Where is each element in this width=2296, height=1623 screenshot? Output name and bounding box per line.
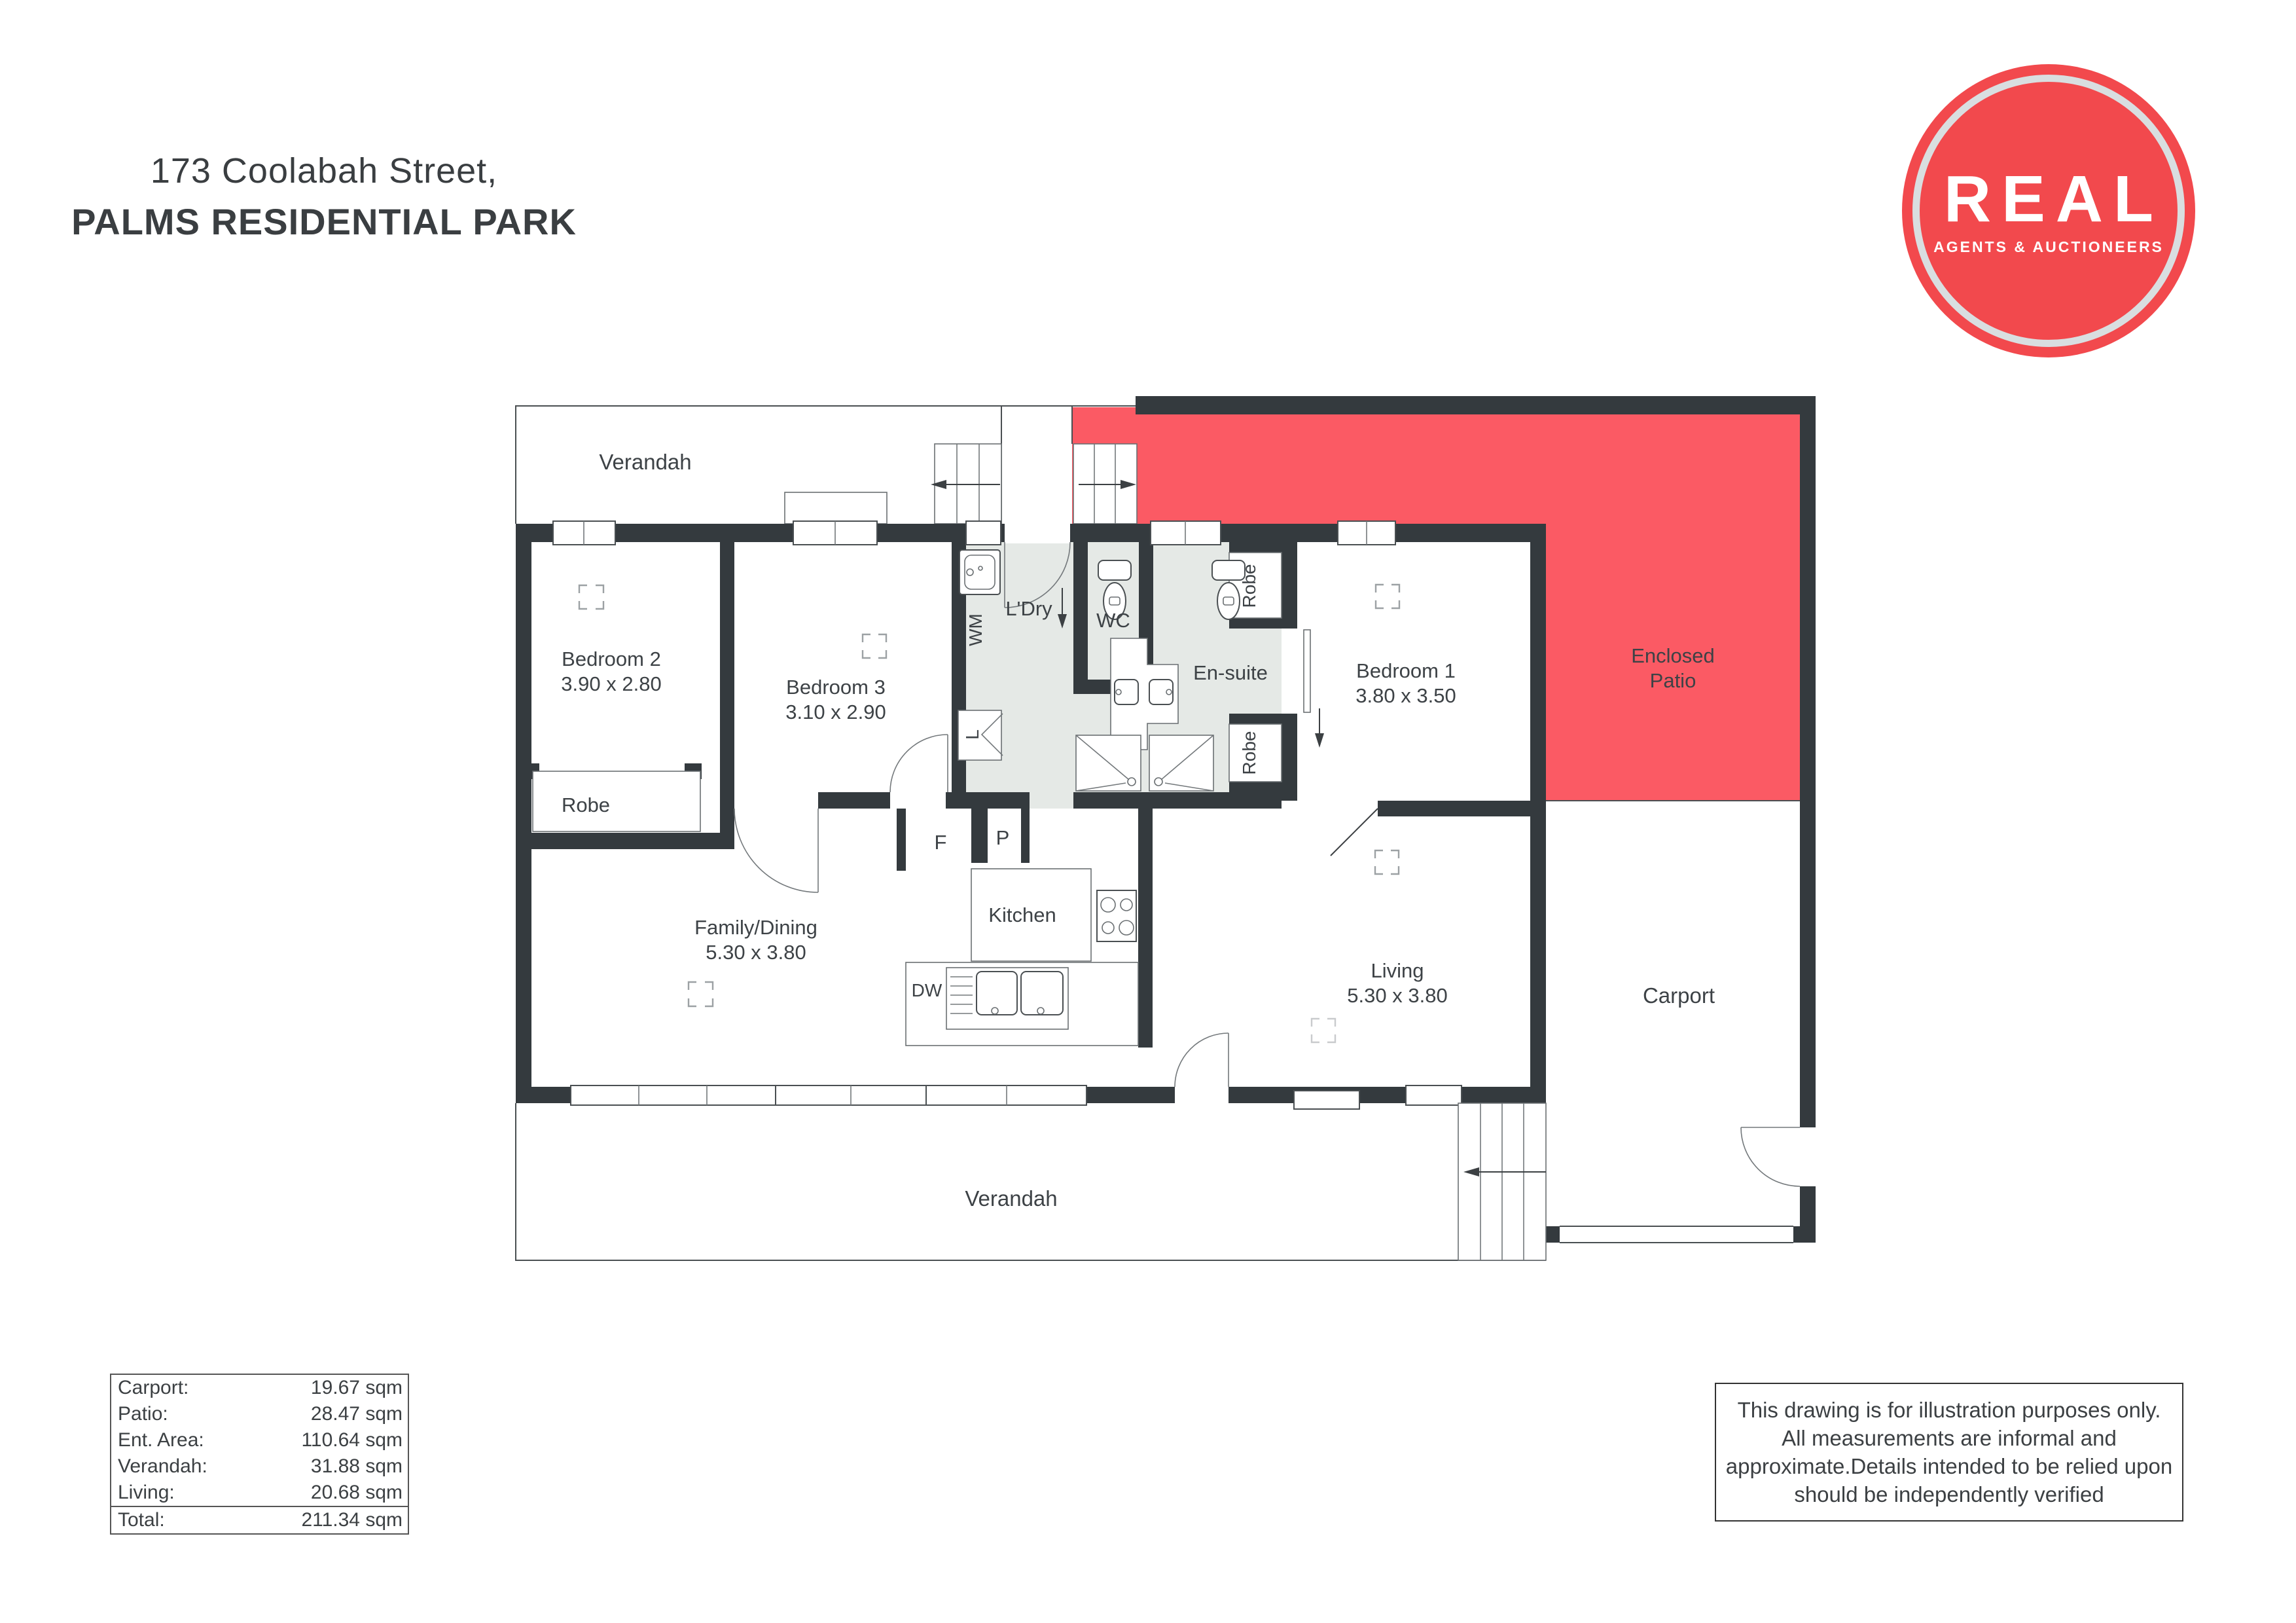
disclaimer-line: All measurements are informal and — [1719, 1424, 2179, 1452]
disclaimer-line: This drawing is for illustration purpose… — [1719, 1396, 2179, 1424]
disclaimer-line: should be independently verified — [1719, 1480, 2179, 1508]
label-linen: L — [962, 729, 982, 740]
label-wc: WC — [1096, 609, 1130, 632]
label-fridge: F — [935, 831, 947, 854]
stairs-front-left — [931, 444, 1001, 524]
laundry-trough — [960, 550, 1000, 594]
room-dims-living: 5.30 x 3.80 — [1347, 984, 1447, 1007]
table-row: Carport: 19.67 sqm — [111, 1375, 408, 1401]
total-value: 211.34 sqm — [301, 1509, 403, 1531]
room-label-verandah-top: Verandah — [599, 450, 691, 474]
label-pantry: P — [996, 826, 1010, 849]
room-label-family: Family/Dining — [694, 916, 817, 939]
table-total-row: Total: 211.34 sqm — [111, 1507, 408, 1533]
stairs-front-right — [1073, 444, 1137, 524]
table-row: Verandah: 31.88 sqm — [111, 1453, 408, 1480]
room-label-patio-line2: Patio — [1650, 669, 1696, 692]
room-label-verandah-bottom: Verandah — [965, 1186, 1057, 1211]
area-row-label: Carport: — [118, 1377, 188, 1399]
kitchen-fixtures — [906, 869, 1138, 1046]
label-robe-bed2: Robe — [562, 793, 610, 816]
table-row: Ent. Area: 110.64 sqm — [111, 1427, 408, 1453]
area-row-value: 31.88 sqm — [311, 1455, 403, 1478]
total-label: Total: — [118, 1509, 165, 1531]
area-row-value: 20.68 sqm — [311, 1482, 403, 1504]
room-dims-bedroom3: 3.10 x 2.90 — [785, 701, 886, 723]
area-row-label: Living: — [118, 1482, 175, 1504]
room-label-bedroom1: Bedroom 1 — [1356, 659, 1456, 682]
table-row: Patio: 28.47 sqm — [111, 1401, 408, 1427]
front-door-opening — [1005, 522, 1070, 543]
room-label-kitchen: Kitchen — [988, 903, 1056, 926]
room-dims-bedroom2: 3.90 x 2.80 — [561, 672, 661, 695]
disclaimer-box: This drawing is for illustration purpose… — [1715, 1383, 2183, 1522]
area-row-value: 110.64 sqm — [301, 1429, 403, 1451]
label-robe-bottom: Robe — [1239, 731, 1259, 775]
area-row-value: 28.47 sqm — [311, 1403, 403, 1425]
area-row-value: 19.67 sqm — [311, 1377, 403, 1399]
disclaimer-line: approximate.Details intended to be relie… — [1719, 1452, 2179, 1480]
room-label-living: Living — [1371, 959, 1424, 982]
family-door-opening — [1175, 1084, 1229, 1106]
area-summary-table: Carport: 19.67 sqm Patio: 28.47 sqm Ent.… — [110, 1374, 409, 1535]
label-ensuite: En-suite — [1193, 661, 1268, 684]
room-dims-family: 5.30 x 3.80 — [706, 941, 806, 964]
label-washing-machine: WM — [965, 613, 986, 646]
area-row-label: Verandah: — [118, 1455, 207, 1478]
area-row-label: Patio: — [118, 1403, 168, 1425]
area-row-label: Ent. Area: — [118, 1429, 204, 1451]
room-label-carport: Carport — [1643, 983, 1715, 1008]
label-robe-top: Robe — [1239, 564, 1259, 608]
room-label-bedroom3: Bedroom 3 — [786, 676, 886, 699]
stairs-rear — [1458, 1103, 1546, 1260]
label-dishwasher: DW — [912, 980, 942, 1000]
room-dims-bedroom1: 3.80 x 3.50 — [1355, 684, 1456, 707]
table-row: Living: 20.68 sqm — [111, 1480, 408, 1506]
room-label-bedroom2: Bedroom 2 — [562, 647, 661, 670]
room-label-patio-line1: Enclosed — [1631, 644, 1715, 667]
bay-window — [785, 492, 887, 524]
label-ldry: L'Dry — [1005, 597, 1052, 620]
carport-lines — [1546, 801, 1800, 1243]
robe-bed2-closet — [533, 771, 700, 831]
